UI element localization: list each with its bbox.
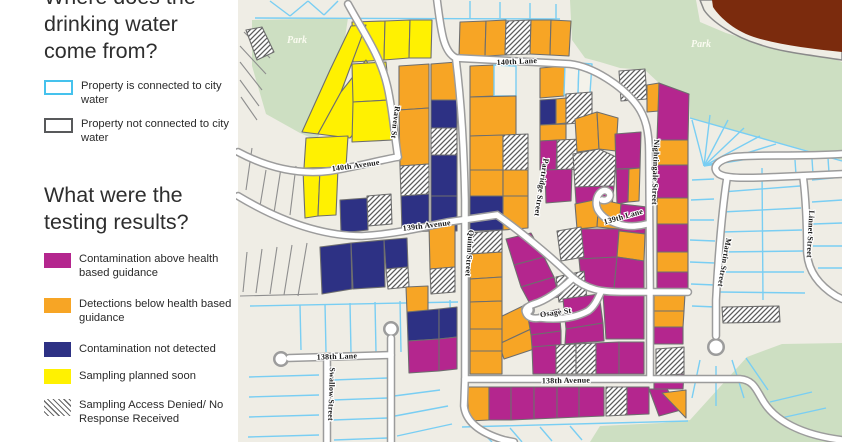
parcel-detections-below <box>470 252 502 279</box>
city-water-swatch <box>44 80 73 95</box>
legend-item-connected: Property is connected to city water <box>44 80 234 107</box>
parcel-access-denied <box>430 267 455 294</box>
not-detected-swatch <box>44 342 71 357</box>
parcel-access-denied <box>503 134 528 170</box>
legend-item-access-denied: Sampling Access Denied/ No Response Rece… <box>44 399 234 426</box>
question-testing-results: What were the testing results? <box>44 182 234 236</box>
parcel-contamination-above <box>627 387 649 415</box>
park-label: Park <box>691 39 711 50</box>
parcel-contamination-above <box>408 339 439 373</box>
culdesac <box>524 306 533 315</box>
parcel-not-detected <box>384 238 408 269</box>
parcel-detections-below <box>503 170 528 196</box>
parcel-not-detected <box>431 155 457 196</box>
parcel-sampling-planned <box>409 20 432 58</box>
parcel-not-detected <box>320 243 352 294</box>
parcel-detections-below <box>459 21 486 57</box>
parcel-line-city-water <box>400 301 401 352</box>
parcel-detections-below <box>470 351 502 374</box>
parcel-line-city-water <box>690 240 715 241</box>
parcel-detections-below <box>470 329 502 351</box>
contamination-above-swatch <box>44 253 71 268</box>
access-denied-swatch <box>44 399 71 416</box>
parcel-detections-below <box>470 277 502 302</box>
culdesac <box>386 324 397 335</box>
parcel-line-city-water <box>375 302 376 352</box>
parcel-contamination-above <box>614 257 644 289</box>
parcel-line-city-water <box>692 179 714 180</box>
culdesac <box>276 354 287 365</box>
parcel-access-denied <box>505 20 531 55</box>
parcel-access-denied <box>557 227 584 261</box>
parcel-contamination-above <box>534 387 557 419</box>
parcel-detections-below <box>556 98 566 124</box>
parcel-access-denied <box>573 149 616 187</box>
legend-label: Contamination above health based guidanc… <box>79 253 234 280</box>
street-label: Swallow Street <box>326 367 337 421</box>
parcel-detections-below <box>530 20 551 55</box>
parcel-not-detected <box>439 307 457 339</box>
parcel-detections-below <box>654 294 685 311</box>
parcel-detections-below <box>657 252 688 272</box>
parcel-contamination-above <box>489 387 511 420</box>
parcel-sampling-planned <box>303 169 320 218</box>
legend-label: Detections below health based guidance <box>79 298 234 325</box>
parcel-sampling-planned <box>384 20 410 60</box>
parcel-not-detected <box>431 100 457 128</box>
parcel-access-denied <box>400 164 429 196</box>
sampling-planned-swatch <box>44 369 71 384</box>
parcel-line-city-water <box>350 303 351 352</box>
legend-item-detections-below: Detections below health based guidance <box>44 298 234 325</box>
parcel-access-denied <box>556 344 576 374</box>
parcel-access-denied <box>656 347 684 376</box>
parcel-contamination-above <box>657 224 688 252</box>
legend-item-contamination-above: Contamination above health based guidanc… <box>44 253 234 280</box>
parcel-contamination-above <box>511 387 534 420</box>
parcel-detections-below <box>575 112 599 152</box>
parcel-access-denied <box>431 128 457 155</box>
parcel-contamination-above <box>557 387 579 418</box>
parcel-detections-below <box>406 286 428 312</box>
parcel-contamination-above <box>615 132 641 169</box>
parcel-contamination-above <box>657 165 688 198</box>
legend-label: Sampling planned soon <box>79 370 234 384</box>
parcel-detections-below <box>470 96 516 136</box>
parcel-detections-below <box>540 124 566 141</box>
legend-label: Property is connected to city water <box>81 80 234 107</box>
parcel-not-detected <box>351 240 385 289</box>
park-label: Park <box>287 35 307 46</box>
parcel-not-detected <box>340 198 368 233</box>
parcel-detections-below <box>399 108 429 166</box>
parcel-detections-below <box>617 231 645 261</box>
parcel-detections-below <box>628 168 640 202</box>
legend-item-not-detected: Contamination not detected <box>44 342 234 357</box>
parcel-line-city-water <box>762 168 763 300</box>
legend-label: Contamination not detected <box>79 343 234 357</box>
parcel-access-denied <box>606 387 627 416</box>
culdesac <box>710 341 723 354</box>
parcel-detections-below <box>399 64 429 110</box>
parcel-contamination-above <box>654 327 683 344</box>
parcel-detections-below <box>647 83 659 112</box>
parcel-detections-below <box>485 20 506 56</box>
street-label: 138th Avenue <box>542 376 591 386</box>
parcel-line-city-water <box>325 304 326 352</box>
parcel-line-city-water <box>719 292 805 293</box>
parcel-contamination-above <box>596 342 619 374</box>
parcel-detections-below <box>657 198 688 224</box>
no-city-water-swatch <box>44 118 73 133</box>
parcel-access-denied <box>722 306 780 323</box>
parcel-line-city-water <box>255 18 560 19</box>
legend-item-not-connected: Property not connected to city water <box>44 118 234 145</box>
parcel-detections-below <box>540 66 565 98</box>
detections-below-swatch <box>44 298 71 313</box>
parcel-detections-below <box>654 311 684 327</box>
parcel-line-city-water <box>690 262 715 263</box>
parcel-contamination-above <box>579 387 604 417</box>
parcel-detections-below <box>470 170 503 196</box>
legend-label: Property not connected to city water <box>81 118 234 145</box>
parcel-line-city-water <box>813 223 842 224</box>
parcel-access-denied <box>576 343 596 374</box>
parcel-detections-below <box>470 301 502 329</box>
parcel-city-water <box>494 65 516 96</box>
legend-panel: Where does the drinking water come from?… <box>0 0 236 442</box>
parcel-access-denied <box>367 194 392 226</box>
parcel-detections-below <box>550 20 571 56</box>
parcel-line-city-water <box>300 305 301 350</box>
legend-item-sampling-planned: Sampling planned soon <box>44 369 234 384</box>
parcel-contamination-above <box>603 292 644 339</box>
street-label: 138th Lane <box>317 351 358 361</box>
parcel-not-detected <box>540 99 556 125</box>
question-water-source: Where does the drinking water come from? <box>44 0 234 65</box>
parcel-access-denied <box>386 267 409 289</box>
legend-label: Sampling Access Denied/ No Response Rece… <box>79 399 234 426</box>
parcel-detections-below <box>470 135 503 170</box>
parcel-contamination-above <box>619 342 644 374</box>
parcel-line-city-water <box>691 284 715 285</box>
parcel-detections-below <box>470 65 494 97</box>
parcel-contamination-above <box>439 337 457 371</box>
parcel-contamination-above <box>532 345 556 374</box>
parcel-not-detected <box>407 309 439 341</box>
parcel-contamination-above <box>616 169 629 204</box>
parcel-line-city-water <box>691 199 714 200</box>
